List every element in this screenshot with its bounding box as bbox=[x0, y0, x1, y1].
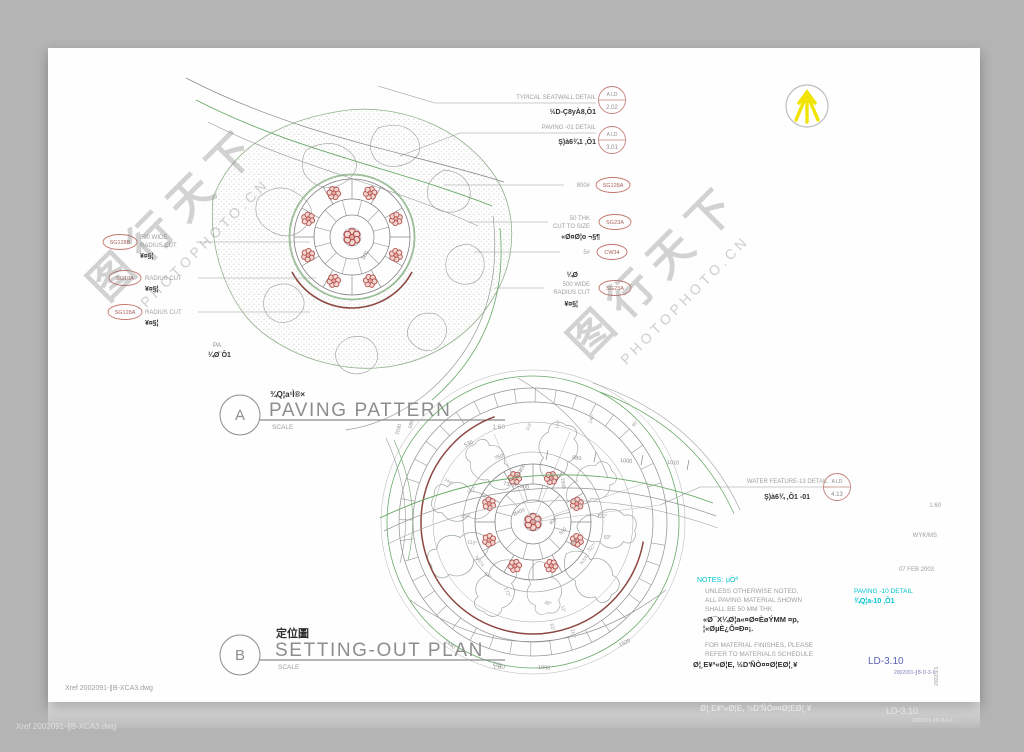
svg-text:115°: 115° bbox=[524, 421, 533, 431]
left-callout-1a: 500 WIDE bbox=[140, 235, 167, 241]
svg-text:B: B bbox=[235, 647, 245, 664]
callout-800: 800# bbox=[577, 183, 591, 189]
svg-text:980: 980 bbox=[572, 455, 582, 462]
drawing-sheet: 500 TYPICAL SEATWALL DETAIL ½D-Ç8yÀ8‚Ô1 … bbox=[48, 48, 980, 702]
svg-text:UNLESS OTHERWISE NOTED,: UNLESS OTHERWISE NOTED, bbox=[705, 588, 799, 595]
svg-text:530: 530 bbox=[463, 440, 474, 449]
callout-5: 5# bbox=[583, 250, 590, 256]
left-callout-2-sub: ¥¤§¦ bbox=[145, 286, 159, 293]
svg-text:63°: 63° bbox=[548, 623, 556, 632]
svg-text:WATER FEATURE-13 DETAIL: WATER FEATURE-13 DETAIL bbox=[747, 479, 829, 485]
ghost-notes: Ø¦¸E¥ª«Ø¦E, ½D'ÑÒ¤¤Ø¦EØ¦¸¥ bbox=[700, 704, 811, 713]
svg-text:400: 400 bbox=[548, 516, 558, 526]
svg-text:SG128A: SG128A bbox=[603, 183, 624, 189]
svg-text:83°: 83° bbox=[604, 535, 612, 541]
svg-text:SG23A: SG23A bbox=[606, 220, 624, 226]
svg-text:1000: 1000 bbox=[620, 458, 633, 465]
tag-sg10a: SG10A bbox=[109, 271, 141, 286]
svg-text:«Ø¯X¼Ø¦a«¤Ø¤ÈøÝMM ¤p,: «Ø¯X¼Ø¦a«¤Ø¤ÈøÝMM ¤p, bbox=[703, 615, 799, 624]
tag-sg128b: SG128B bbox=[103, 235, 137, 250]
title-b-en: SETTING-OUT PLAN bbox=[275, 640, 484, 661]
left-callout-1b: RADIUS CUT bbox=[140, 243, 177, 249]
svg-text:SG128B: SG128B bbox=[110, 240, 131, 246]
left-callout-3: RADIUS CUT bbox=[145, 310, 182, 316]
svg-text:2.02: 2.02 bbox=[606, 105, 618, 111]
svg-text:48°: 48° bbox=[544, 600, 552, 607]
notes-block: NOTES: µÒª UNLESS OTHERWISE NOTED, ALL P… bbox=[693, 575, 814, 669]
svg-text:121°: 121° bbox=[597, 514, 607, 520]
svg-text:REFER TO MATERIALS SCHEDULE: REFER TO MATERIALS SCHEDULE bbox=[705, 651, 814, 658]
tb-scale: 1:60 bbox=[929, 503, 941, 509]
file-number: 2002091-∥B-D-3-1 bbox=[894, 670, 935, 676]
svg-text:3.01: 3.01 bbox=[606, 145, 618, 151]
ref-bubble-2-02: A LD 2.02 bbox=[599, 87, 626, 114]
callout-500w-1: 500 WIDE bbox=[563, 282, 590, 288]
title-b: B 定位圖 SETTING-OUT PLAN SCALE 1:60 bbox=[220, 626, 505, 675]
tb-drawn: WYK/MS bbox=[913, 533, 937, 539]
notes-head: NOTES: bbox=[697, 577, 723, 584]
svg-text:SG10A: SG10A bbox=[116, 276, 134, 282]
ref-bubble-3-01: A LD 3.01 bbox=[599, 127, 626, 154]
dim-500-a: 500 bbox=[361, 250, 371, 261]
pa-sub: ¼Ø¨Ô1 bbox=[208, 350, 231, 359]
svg-text:144°: 144° bbox=[443, 477, 454, 486]
cad-canvas: 500 TYPICAL SEATWALL DETAIL ½D-Ç8yÀ8‚Ô1 … bbox=[48, 48, 980, 702]
callout-50thk-sub: «Ø¤Ø¦o ¬§¶ bbox=[561, 234, 600, 241]
ghost-fileno: 2002091-∥B-D-3-1 bbox=[912, 718, 953, 724]
svg-text:124°: 124° bbox=[554, 419, 561, 429]
svg-text:158°: 158° bbox=[460, 513, 471, 520]
ghost-dwgno: LD-3.10 bbox=[886, 706, 918, 716]
tag-sg128a-right: SG128A bbox=[596, 178, 630, 193]
drawing-a-paving-pattern: 500 TYPICAL SEATWALL DETAIL ½D-Ç8yÀ8‚Ô1 … bbox=[103, 78, 631, 478]
callout-paving01-label: PAVING -01 DETAIL bbox=[542, 125, 597, 131]
title-a-en: PAVING PATTERN bbox=[269, 400, 452, 421]
svg-text:750: 750 bbox=[494, 453, 505, 462]
callout-seatwall-sub: ½D-Ç8yÀ8‚Ô1 bbox=[550, 107, 596, 116]
svg-text:CW34: CW34 bbox=[604, 250, 619, 256]
callout-500w-sup: ¼Ø bbox=[567, 271, 579, 279]
title-a: A ¾Q¦a¹Ì®× PAVING PATTERN SCALE 1:60 bbox=[220, 390, 505, 435]
stipple-band bbox=[212, 109, 511, 368]
svg-text:¦«ØµÈ¿Ô¤Ð¤¡.: ¦«ØµÈ¿Ô¤Ð¤¡. bbox=[703, 624, 753, 633]
svg-text:A LD: A LD bbox=[607, 92, 618, 98]
title-a-zh: ¾Q¦a¹Ì®× bbox=[270, 390, 305, 399]
svg-text:1:60: 1:60 bbox=[492, 664, 505, 671]
svg-text:500: 500 bbox=[558, 526, 568, 536]
svg-text:113°: 113° bbox=[467, 539, 478, 547]
left-callout-1-sub: ¥¤§¦ bbox=[140, 253, 154, 260]
pa-label: PA bbox=[213, 342, 222, 349]
svg-text:73° R7500: 73° R7500 bbox=[503, 481, 530, 491]
callout-paving01-sub: Ş)à6¾1 ‚Ô1 bbox=[558, 137, 596, 146]
callout-50thk-1: 50 THK bbox=[570, 216, 590, 222]
left-callout-2: RADIUS CUT bbox=[145, 276, 182, 282]
title-b-zh: 定位圖 bbox=[276, 626, 309, 640]
svg-text:FOR MATERIAL FINISHES, PLEASE: FOR MATERIAL FINISHES, PLEASE bbox=[705, 642, 814, 649]
svg-text:1030: 1030 bbox=[394, 423, 403, 436]
paving10-sub: ¾Q¦a-10 ‚Ô1 bbox=[854, 596, 895, 605]
svg-text:11°: 11° bbox=[559, 605, 567, 614]
tb-date: 07 FEB 2003 bbox=[899, 567, 935, 573]
svg-text:180: 180 bbox=[407, 420, 415, 430]
left-callout-3-sub: ¥¤§¦ bbox=[145, 320, 159, 327]
tag-sg23a-2: SG23A bbox=[599, 281, 631, 296]
svg-text:Ş)à6¾ ‚Ô1 -01: Ş)à6¾ ‚Ô1 -01 bbox=[764, 492, 810, 501]
dwg-number: LD-3.10 bbox=[868, 656, 904, 667]
svg-text:1090: 1090 bbox=[538, 665, 550, 671]
svg-text:N:374: N:374 bbox=[474, 555, 485, 568]
sheet-reflection bbox=[48, 702, 980, 728]
svg-text:Ø400: Ø400 bbox=[512, 507, 526, 518]
callout-500w-2: RADIUS CUT bbox=[553, 290, 590, 296]
screenshot-stage: 500 TYPICAL SEATWALL DETAIL ½D-Ç8yÀ8‚Ô1 … bbox=[0, 0, 1024, 752]
svg-text:SCALE: SCALE bbox=[272, 424, 294, 431]
tag-sg23a-1: SG23A bbox=[599, 215, 631, 230]
svg-text:ALL PAVING MATERIAL SHOWN: ALL PAVING MATERIAL SHOWN bbox=[705, 597, 802, 604]
svg-text:N:542: N:542 bbox=[579, 552, 590, 565]
callout-500w-sub: ¥¤§¦ bbox=[564, 301, 578, 308]
svg-text:A LD: A LD bbox=[832, 479, 843, 485]
notes-head-sub: µÒª bbox=[726, 575, 738, 584]
svg-text:SG23A: SG23A bbox=[606, 286, 624, 292]
north-arrow bbox=[786, 85, 828, 127]
svg-text:SG128A: SG128A bbox=[115, 310, 136, 316]
svg-text:A: A bbox=[235, 407, 245, 424]
svg-text:4.13: 4.13 bbox=[831, 492, 843, 498]
side-number: 2002/9/1 bbox=[934, 666, 940, 686]
svg-text:Ø¦¸E¥ª«Ø¦E, ½D'ÑÒ¤¤Ø¦EØ¦¸¥: Ø¦¸E¥ª«Ø¦E, ½D'ÑÒ¤¤Ø¦EØ¦¸¥ bbox=[693, 660, 798, 669]
xref-label: Xref 2002091-∥B-XCA3.dwg bbox=[65, 684, 153, 692]
paving10-label: PAVING -10 DETAIL bbox=[854, 588, 913, 595]
svg-text:64°: 64° bbox=[483, 571, 493, 581]
svg-text:1010: 1010 bbox=[667, 460, 679, 466]
svg-text:SHALL BE 50 MM THK.: SHALL BE 50 MM THK. bbox=[705, 606, 774, 613]
tag-sg128a-left: SG128A bbox=[108, 305, 142, 320]
callout-water-feature: WATER FEATURE-13 DETAIL Ş)à6¾ ‚Ô1 -01 A … bbox=[660, 474, 851, 506]
tag-cw34: CW34 bbox=[597, 245, 627, 260]
callout-50thk-2: CUT TO SIZE bbox=[553, 224, 590, 230]
ghost-xref: Xref 2002091-∥B-XCA3.dwg bbox=[16, 722, 117, 731]
svg-text:A LD: A LD bbox=[607, 132, 618, 138]
svg-text:SCALE: SCALE bbox=[278, 664, 300, 671]
b-angles: 115° 124° 140° 95° 144° 137° 158° 113° N… bbox=[443, 414, 639, 639]
callout-seatwall-label: TYPICAL SEATWALL DETAIL bbox=[516, 95, 596, 101]
